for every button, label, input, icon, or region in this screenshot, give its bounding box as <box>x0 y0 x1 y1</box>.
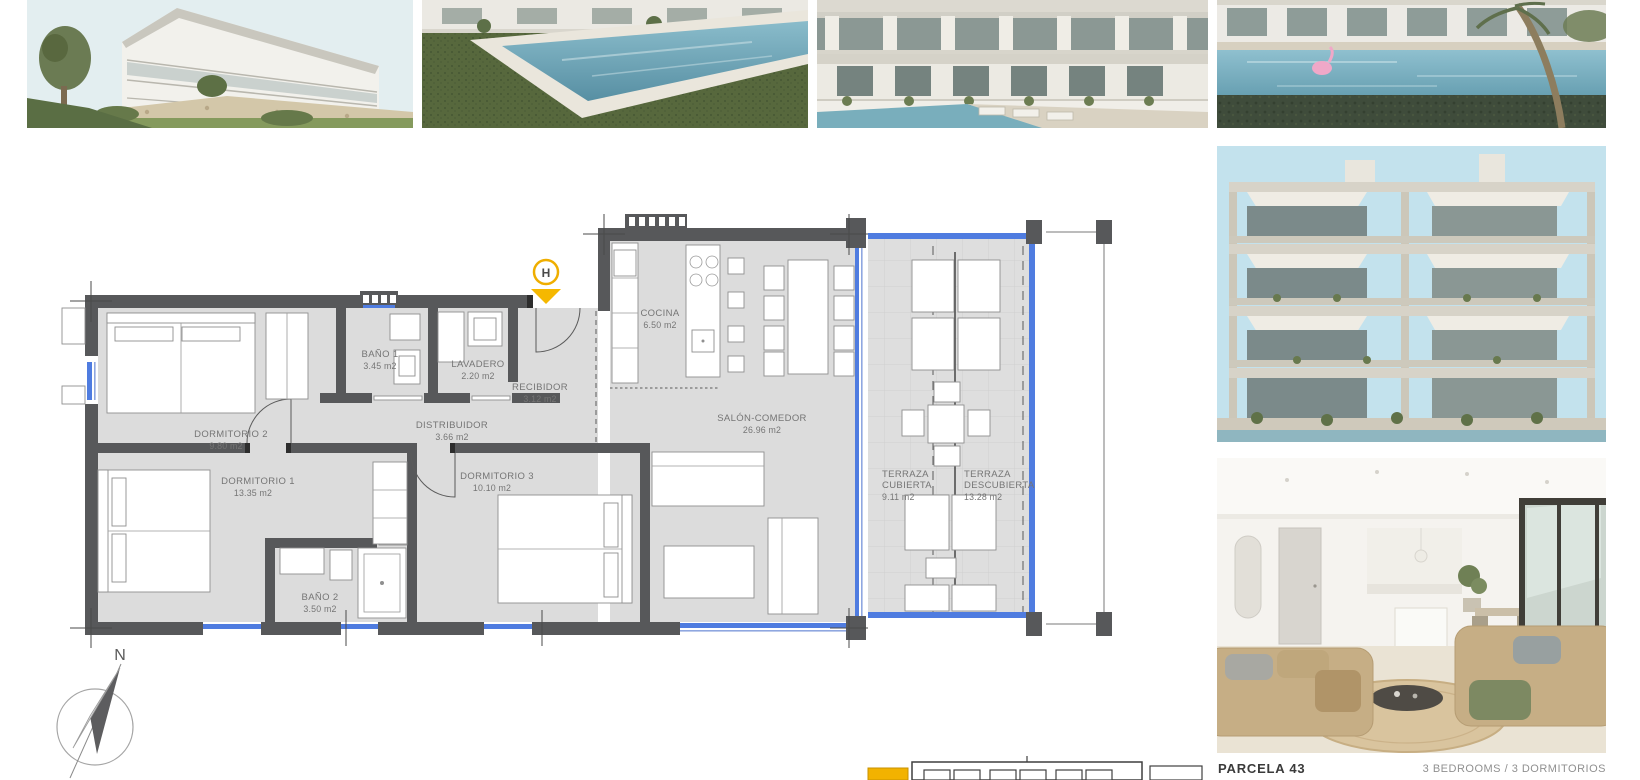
entrance-marker-letter: H <box>542 266 551 280</box>
area-lavadero: 2.20 m2 <box>461 371 494 381</box>
compass-icon: N <box>57 647 133 778</box>
entrance-arrow-icon <box>531 289 561 304</box>
bedrooms-caption: 3 BEDROOMS / 3 DORMITORIOS <box>1423 763 1606 775</box>
label-dormitorio-1: DORMITORIO 1 <box>221 476 295 487</box>
label-distribuidor: DISTRIBUIDOR <box>416 420 488 431</box>
label-dormitorio-3: DORMITORIO 3 <box>460 471 534 482</box>
label-terraza-cubierta-2: CUBIERTA <box>882 480 932 491</box>
label-terraza-descubierta-1: TERRAZA <box>964 469 1011 480</box>
floor-plan: DORMITORIO 2 9.80 m2 BAÑO 1 3.45 m2 LAVA… <box>0 0 1640 780</box>
site-key-highlighted-unit <box>868 768 908 780</box>
parcel-caption: PARCELA 43 <box>1218 761 1305 776</box>
area-recibidor: 3.12 m2 <box>523 394 556 404</box>
label-terraza-cubierta-1: TERRAZA <box>882 469 929 480</box>
label-bano-1: BAÑO 1 <box>362 349 399 360</box>
area-salon-comedor: 26.96 m2 <box>743 425 781 435</box>
label-bano-2: BAÑO 2 <box>302 592 339 603</box>
area-dormitorio-3: 10.10 m2 <box>473 483 511 493</box>
label-terraza-descubierta-2: DESCUBIERTA <box>964 480 1035 491</box>
brochure-page: DORMITORIO 2 9.80 m2 BAÑO 1 3.45 m2 LAVA… <box>0 0 1640 780</box>
area-bano-2: 3.50 m2 <box>303 604 336 614</box>
area-dormitorio-2: 9.80 m2 <box>209 441 242 451</box>
compass-north-label: N <box>114 647 126 664</box>
label-salon-comedor: SALÓN-COMEDOR <box>717 413 807 424</box>
area-terraza-descubierta: 13.28 m2 <box>964 492 1002 502</box>
area-bano-1: 3.45 m2 <box>363 361 396 371</box>
area-dormitorio-1: 13.35 m2 <box>234 488 272 498</box>
site-key <box>850 756 1210 780</box>
area-distribuidor: 3.66 m2 <box>435 432 468 442</box>
area-cocina: 6.50 m2 <box>643 320 676 330</box>
label-cocina: COCINA <box>640 308 679 319</box>
area-terraza-cubierta: 9.11 m2 <box>882 492 915 502</box>
label-lavadero: LAVADERO <box>451 359 504 370</box>
entrance-marker: H <box>531 260 561 304</box>
site-key-art <box>850 756 1210 780</box>
label-recibidor: RECIBIDOR <box>512 382 568 393</box>
label-dormitorio-2: DORMITORIO 2 <box>194 429 268 440</box>
